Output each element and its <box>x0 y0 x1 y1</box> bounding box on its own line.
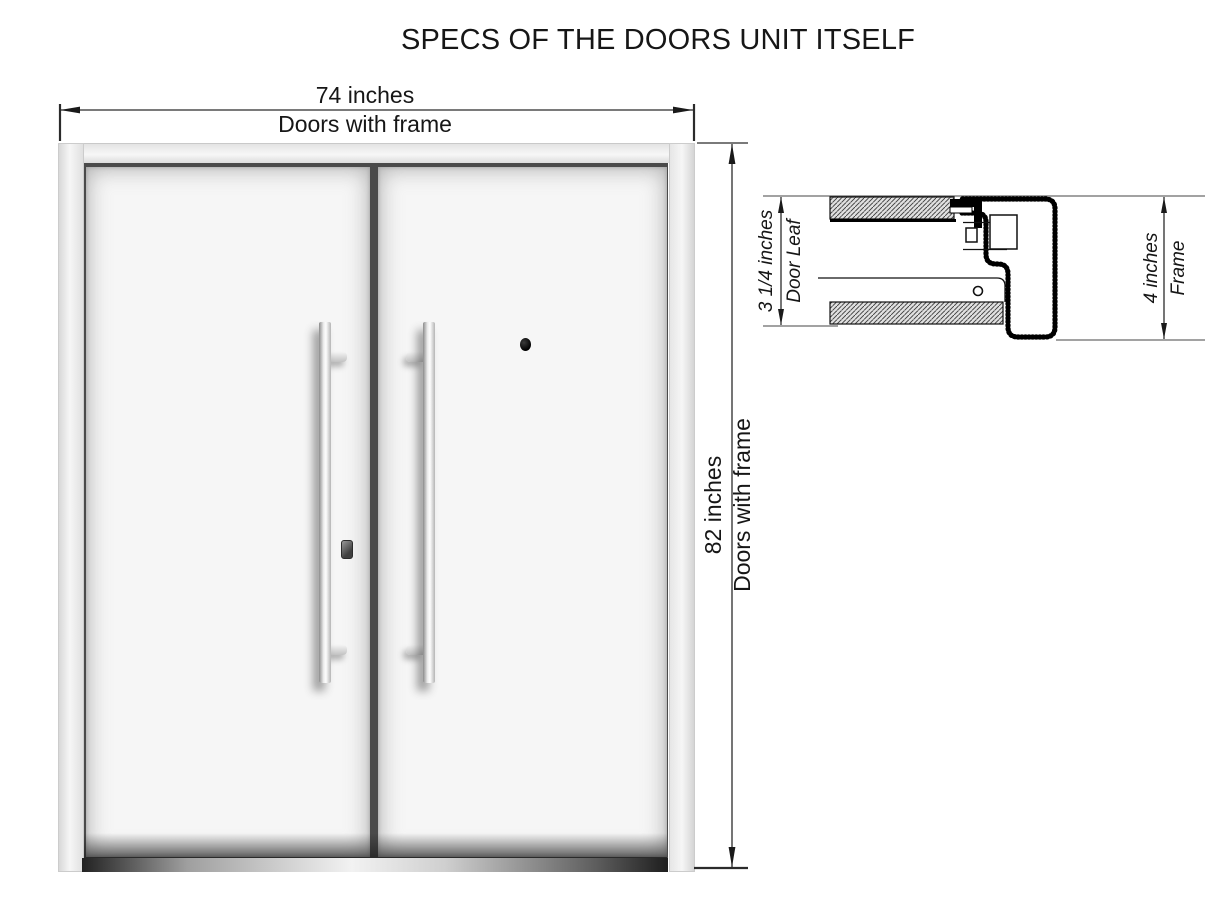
door-bottom-shadow <box>84 833 667 859</box>
lock-cylinder <box>341 540 353 559</box>
frame-profile <box>962 199 1055 337</box>
section-drawing <box>763 196 1205 340</box>
handle-bracket <box>330 645 347 655</box>
frame-depth-label: Frame <box>1168 208 1190 328</box>
width-dimension-label: Doors with frame <box>215 111 515 138</box>
door-frame-left-jamb <box>58 143 84 872</box>
threshold <box>82 858 668 872</box>
handle-bracket <box>406 645 423 655</box>
pull-handle-right <box>423 322 435 683</box>
door-leaf-section <box>818 197 1005 324</box>
width-dimension-value: 74 inches <box>215 82 515 109</box>
height-dimension-value: 82 inches <box>700 425 726 585</box>
peephole <box>520 338 531 351</box>
spec-sheet: SPECS OF THE DOORS UNIT ITSELF 74 inches… <box>0 0 1214 911</box>
height-dimension-label: Doors with frame <box>729 405 755 605</box>
door-frame-right-jamb <box>669 143 695 872</box>
door-frame-head <box>58 143 695 163</box>
door-leaf-thickness-label: Door Leaf <box>784 191 806 331</box>
handle-bracket <box>330 352 347 362</box>
door-leaf-thickness-value: 3 1/4 inches <box>756 191 778 331</box>
handle-bracket <box>406 352 423 362</box>
pull-handle-left <box>319 322 331 683</box>
lock-detail <box>963 215 1017 250</box>
door-leaf-right <box>378 167 667 857</box>
page-title: SPECS OF THE DOORS UNIT ITSELF <box>351 24 965 57</box>
frame-depth-value: 4 inches <box>1141 208 1163 328</box>
